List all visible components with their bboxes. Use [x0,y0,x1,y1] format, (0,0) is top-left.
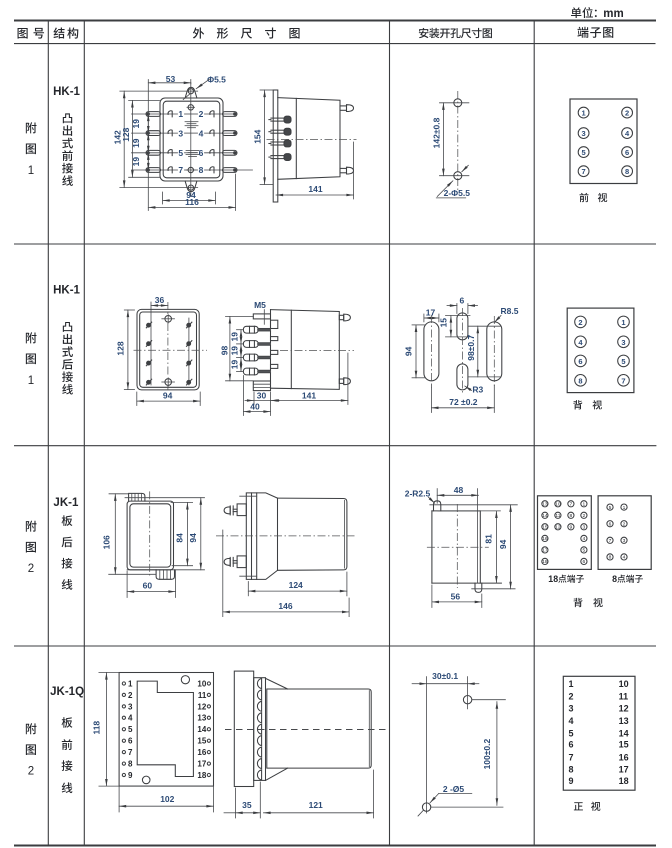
svg-text:3: 3 [582,129,586,138]
svg-text:98: 98 [219,346,229,356]
svg-text:4: 4 [128,714,133,723]
svg-text:30: 30 [257,390,267,400]
svg-text:7: 7 [582,167,586,176]
svg-text:5: 5 [569,728,574,738]
svg-text:6: 6 [569,740,574,750]
svg-text:18: 18 [548,574,558,584]
svg-text:11: 11 [198,691,207,700]
svg-text:JK-1: JK-1 [53,497,79,509]
svg-text:6: 6 [199,148,204,158]
svg-text:19: 19 [229,360,239,370]
svg-text:102: 102 [160,794,174,804]
svg-text:8: 8 [609,555,612,561]
svg-text:7: 7 [178,165,183,175]
svg-text:128: 128 [121,127,131,141]
svg-text:6: 6 [578,357,582,366]
svg-text:6: 6 [625,148,629,157]
svg-text:2 -Ø5: 2 -Ø5 [443,784,465,794]
svg-text:16: 16 [197,748,206,757]
svg-text:8: 8 [570,513,573,519]
svg-text:48: 48 [454,485,464,495]
svg-text:141: 141 [308,184,322,194]
svg-text:118: 118 [91,721,101,735]
svg-text:19: 19 [229,346,239,356]
svg-text:4: 4 [623,555,626,561]
svg-text:8: 8 [612,574,617,584]
svg-text:7: 7 [128,748,133,757]
svg-text:40: 40 [250,401,260,411]
svg-text:17: 17 [197,760,206,769]
svg-text:142±0.8: 142±0.8 [432,117,442,148]
svg-text:18: 18 [542,559,548,565]
svg-text:13: 13 [619,716,629,726]
svg-text:106: 106 [102,535,112,549]
svg-text:19: 19 [131,119,141,129]
svg-text:2-R2.5: 2-R2.5 [405,488,431,498]
svg-text:12: 12 [555,525,561,531]
svg-text:6: 6 [460,295,465,305]
svg-text:5: 5 [621,357,625,366]
svg-text:19: 19 [131,138,141,148]
svg-text:7: 7 [621,376,625,385]
svg-text:17: 17 [619,764,629,774]
svg-text:35: 35 [242,800,252,810]
svg-text:7: 7 [569,753,574,763]
svg-text:30±0.1: 30±0.1 [432,671,458,681]
svg-text:R8.5: R8.5 [501,306,519,316]
svg-text:14: 14 [197,725,206,734]
svg-text:11: 11 [555,513,560,519]
svg-text:7: 7 [609,538,612,544]
svg-text:2: 2 [578,318,582,327]
svg-text:1: 1 [623,505,626,511]
svg-text:2: 2 [569,692,574,702]
svg-text:16: 16 [542,536,548,542]
svg-text:94: 94 [404,346,414,356]
svg-text:116: 116 [185,197,199,207]
svg-text:9: 9 [570,525,573,531]
svg-text:84: 84 [175,533,185,543]
svg-text:4: 4 [569,716,574,726]
svg-text:Φ5.5: Φ5.5 [207,75,226,85]
svg-text:3: 3 [178,128,183,138]
svg-text:10: 10 [619,679,629,689]
svg-text:6: 6 [128,737,133,746]
svg-text:1: 1 [178,109,183,119]
svg-text:11: 11 [619,692,629,702]
svg-text:146: 146 [278,601,292,611]
svg-text:121: 121 [309,800,323,810]
svg-text:16: 16 [619,753,629,763]
svg-text:19: 19 [229,332,239,342]
svg-text:6: 6 [583,559,586,565]
svg-text:2: 2 [128,691,133,700]
svg-text:94: 94 [498,539,508,549]
svg-text:17: 17 [542,548,548,554]
svg-text:2: 2 [623,521,626,527]
svg-text:17: 17 [426,308,436,318]
svg-text:4: 4 [583,536,586,542]
svg-text:1: 1 [583,502,586,508]
svg-text:M5: M5 [254,300,266,310]
svg-text:9: 9 [128,771,133,780]
svg-text:15: 15 [619,740,629,750]
svg-text:12: 12 [197,702,206,711]
svg-text:mm: mm [603,8,623,20]
svg-text:2: 2 [199,109,204,119]
svg-text:12: 12 [619,704,629,714]
svg-text:1: 1 [28,375,34,387]
svg-text:5: 5 [582,148,586,157]
svg-text:36: 36 [155,295,165,305]
svg-text:94: 94 [188,533,198,543]
svg-text:5: 5 [609,505,612,511]
svg-text:3: 3 [621,338,625,347]
svg-text:4: 4 [199,128,204,138]
svg-text:15: 15 [542,525,548,531]
svg-text:19: 19 [131,157,141,167]
svg-text:124: 124 [289,580,303,590]
svg-text:14: 14 [619,728,629,738]
svg-text:1: 1 [569,679,574,689]
svg-text:9: 9 [569,776,574,786]
svg-text:HK-1: HK-1 [53,86,80,98]
svg-text:53: 53 [166,74,176,84]
svg-text:1: 1 [28,165,34,177]
svg-text:14: 14 [542,513,548,519]
svg-text:6: 6 [609,521,612,527]
svg-text:18: 18 [197,771,206,780]
svg-text:154: 154 [252,129,262,143]
svg-text:2: 2 [625,109,629,118]
svg-text:56: 56 [451,591,461,601]
svg-text:10: 10 [555,502,561,508]
svg-text:JK-1Q: JK-1Q [50,686,84,698]
svg-text:8: 8 [128,760,133,769]
svg-text:13: 13 [542,502,548,508]
svg-text:15: 15 [438,318,448,328]
svg-text:R3: R3 [472,385,483,395]
svg-text:2-Φ5.5: 2-Φ5.5 [444,188,471,198]
svg-text:8: 8 [569,764,574,774]
svg-text:81: 81 [484,534,494,544]
svg-text:72 ±0.2: 72 ±0.2 [449,397,478,407]
svg-text:10: 10 [197,679,206,688]
svg-text:2: 2 [28,766,34,778]
svg-text:3: 3 [569,704,574,714]
svg-text:3: 3 [128,702,133,711]
svg-text:HK-1: HK-1 [53,285,80,297]
svg-text:8: 8 [199,165,204,175]
svg-text:18: 18 [619,776,629,786]
svg-text:7: 7 [570,502,573,508]
svg-text:94: 94 [163,390,173,400]
svg-text:13: 13 [197,714,206,723]
svg-text:8: 8 [625,167,629,176]
svg-text:5: 5 [583,548,586,554]
svg-text:5: 5 [128,725,133,734]
svg-text:2: 2 [583,513,586,519]
svg-text:1: 1 [128,679,133,688]
svg-text:141: 141 [302,390,316,400]
svg-text:15: 15 [197,737,206,746]
svg-text:60: 60 [143,581,153,591]
svg-text:8: 8 [578,376,582,385]
svg-text:1: 1 [582,109,586,118]
svg-text:100±0.2: 100±0.2 [482,739,492,770]
svg-text:98±0.7: 98±0.7 [466,335,476,361]
svg-text:1: 1 [621,318,625,327]
svg-text:3: 3 [583,525,586,531]
svg-text:3: 3 [623,538,626,544]
svg-text:2: 2 [28,563,34,575]
svg-text:5: 5 [178,148,183,158]
svg-text:128: 128 [116,341,126,355]
